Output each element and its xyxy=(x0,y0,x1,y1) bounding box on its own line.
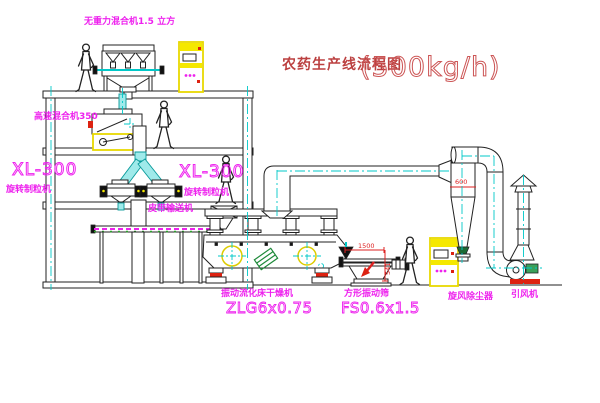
cyclone-diameter-dim: 600 xyxy=(455,178,467,186)
granulator-right-model: XL-300 xyxy=(179,162,244,182)
person-figure xyxy=(76,44,96,91)
control-cabinet-lower xyxy=(430,238,458,286)
flow-diagram-canvas: 农药生产线流程图 (500kg/h) 无重力混合机1.5 立方 高速混合机350… xyxy=(0,0,600,403)
high-speed-mixer-label: 高速混合机350 xyxy=(34,110,98,122)
fluid-bed-dryer xyxy=(203,209,349,283)
high-speed-mixer xyxy=(88,94,146,155)
dryer-model: ZLG6x0.75 xyxy=(226,299,313,317)
screen-length-dim: 1500 xyxy=(358,242,375,250)
granulator-left-model: XL-300 xyxy=(12,160,77,180)
control-cabinet-upper xyxy=(179,42,203,92)
granulator-right-label: 旋转制粒机 xyxy=(183,186,229,198)
dryer-label: 振动流化床干燥机 xyxy=(221,287,293,299)
exhaust-duct xyxy=(262,166,439,218)
screen-height-dim: 541 xyxy=(384,263,392,275)
cyclone-label: 旋风除尘器 xyxy=(447,290,494,302)
gravity-mixer-label: 无重力混合机1.5 立方 xyxy=(83,15,175,27)
fan-suction-pipe xyxy=(478,147,512,277)
screen-model: FS0.6x1.5 xyxy=(341,299,420,317)
exhaust-stack xyxy=(510,175,536,260)
belt-conveyor-label: 皮带输送机 xyxy=(147,202,193,214)
person-figure xyxy=(154,101,174,148)
diagram-title-capacity: (500kg/h) xyxy=(360,52,501,83)
granulator-left-label: 旋转制粒机 xyxy=(5,183,51,195)
screen-label: 方形振动筛 xyxy=(344,287,389,299)
fan-label: 引风机 xyxy=(511,288,538,300)
